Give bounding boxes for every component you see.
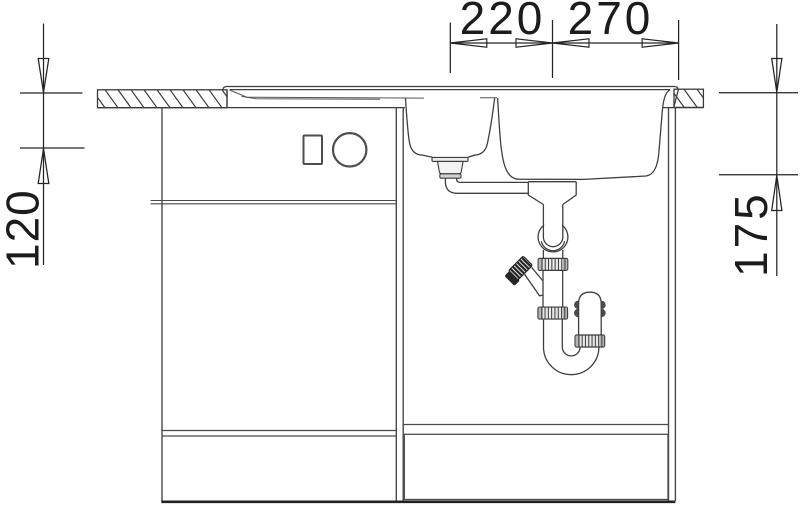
svg-text:175: 175 (725, 191, 777, 277)
svg-text:120: 120 (0, 189, 49, 269)
svg-text:220: 220 (460, 0, 546, 44)
svg-text:270: 270 (568, 0, 654, 44)
